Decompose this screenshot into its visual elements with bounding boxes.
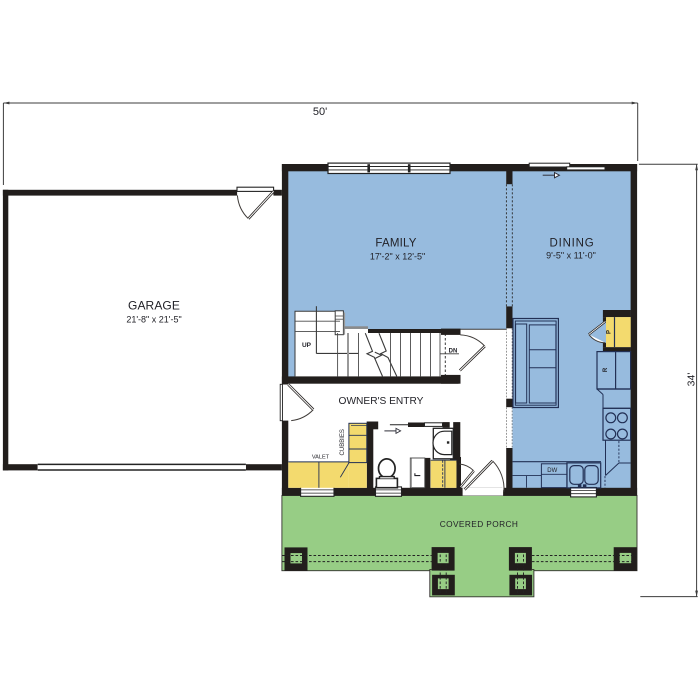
svg-text:21'-8" x 21'-5": 21'-8" x 21'-5" [126, 315, 181, 325]
svg-text:CUBBIES: CUBBIES [340, 429, 346, 455]
svg-text:COVERED PORCH: COVERED PORCH [440, 519, 519, 529]
svg-text:OWNER'S ENTRY: OWNER'S ENTRY [339, 396, 424, 407]
svg-text:9'-5" x 11'-0": 9'-5" x 11'-0" [546, 251, 596, 261]
svg-text:DW: DW [547, 468, 557, 474]
svg-text:50': 50' [313, 106, 327, 118]
svg-text:UP: UP [302, 342, 312, 349]
svg-text:P: P [607, 330, 613, 334]
svg-text:GARAGE: GARAGE [128, 299, 180, 313]
svg-text:FAMILY: FAMILY [375, 237, 416, 249]
svg-text:17'-2" x 12'-5": 17'-2" x 12'-5" [370, 252, 425, 262]
svg-text:VALET: VALET [312, 455, 330, 461]
svg-text:DINING: DINING [549, 237, 594, 249]
svg-text:R: R [603, 367, 609, 372]
svg-text:DN: DN [449, 348, 458, 354]
svg-text:34': 34' [686, 373, 698, 387]
